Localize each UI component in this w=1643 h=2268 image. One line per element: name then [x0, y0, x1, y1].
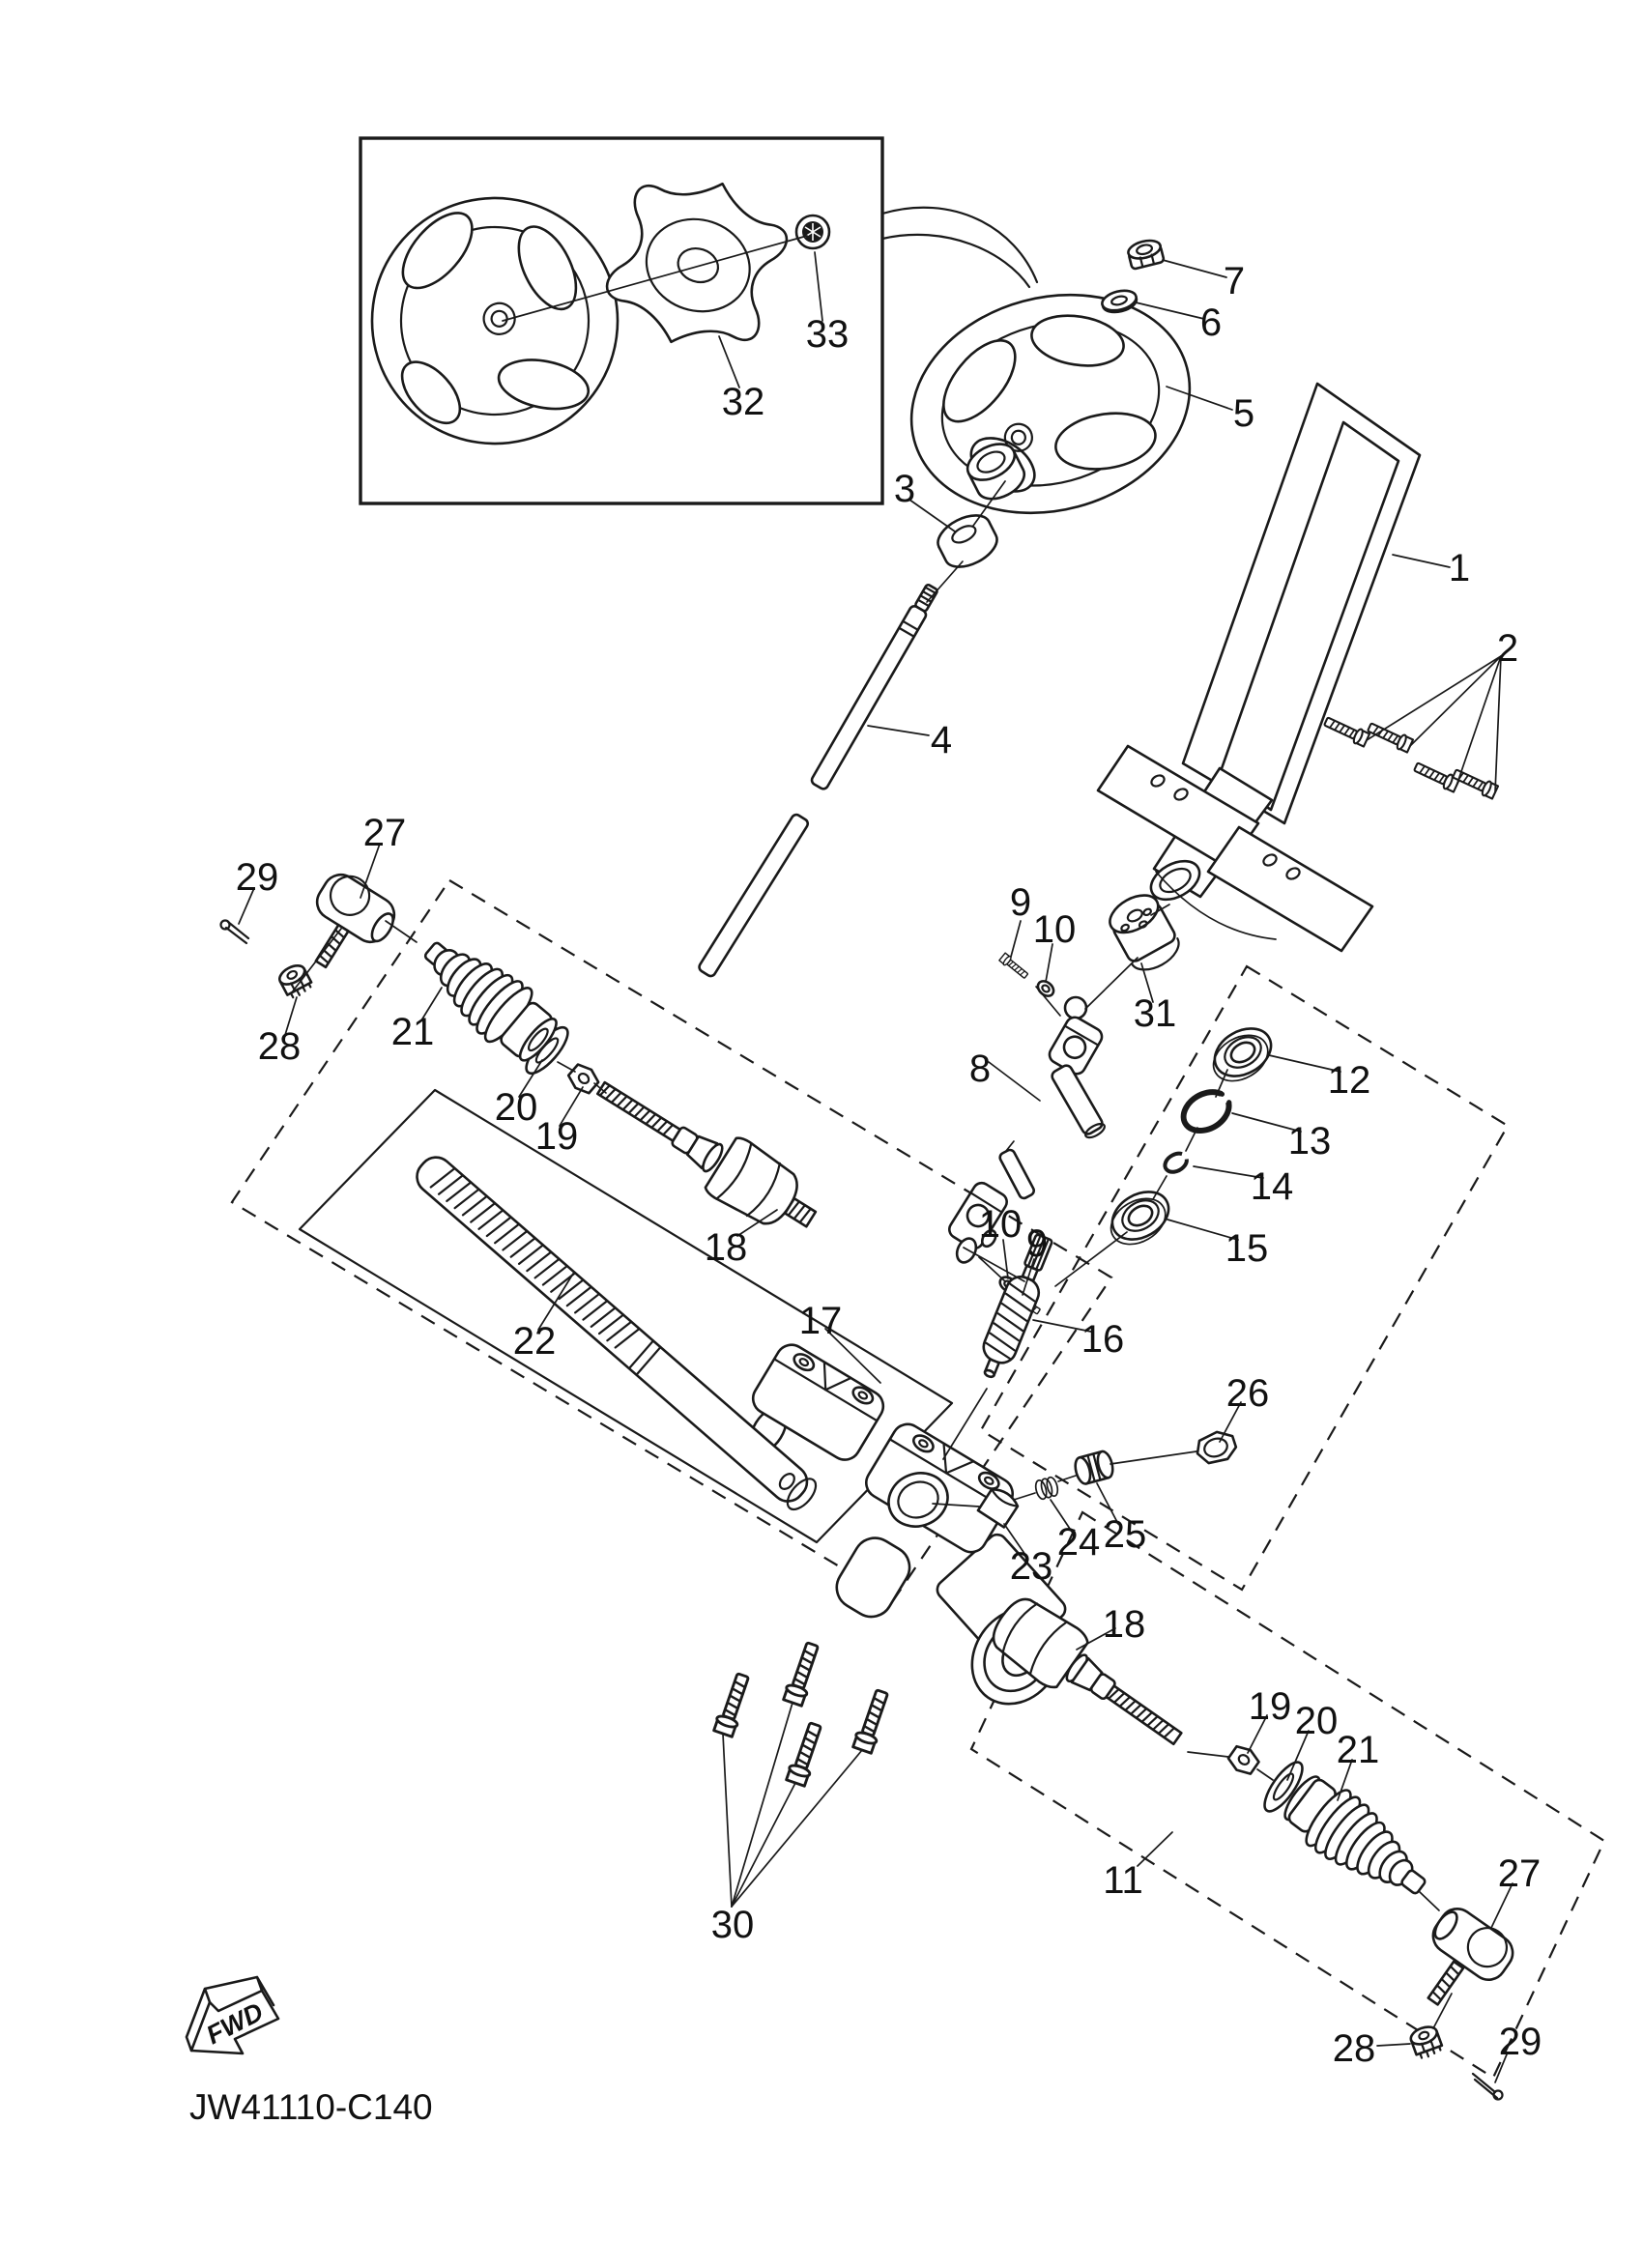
guide-spring: [1034, 1476, 1059, 1500]
callout-10-upper: 10: [1033, 908, 1077, 951]
boot-right: [1275, 1766, 1441, 1914]
callout-9-upper: 9: [1010, 881, 1031, 924]
callout-16: 16: [1081, 1318, 1125, 1361]
callout-9-lower: 9: [1026, 1222, 1048, 1265]
cotter-pin-left: [221, 921, 249, 944]
callout-24: 24: [1057, 1521, 1101, 1564]
callout-31: 31: [1134, 992, 1177, 1035]
callout-21-left: 21: [391, 1011, 435, 1053]
bracket-bolts: [1323, 714, 1499, 799]
castle-nut-right: [1408, 2024, 1444, 2060]
callout-10-lower: 10: [979, 1203, 1023, 1246]
callout-17: 17: [799, 1300, 843, 1342]
callout-28-right: 28: [1333, 2027, 1376, 2070]
drawing-code: JW41110-C140: [189, 2087, 433, 2127]
wheel-nut: [1127, 238, 1165, 270]
callout-1: 1: [1449, 547, 1470, 589]
callout-23: 23: [1010, 1545, 1053, 1588]
steering-wheel-main: [887, 265, 1215, 543]
tie-rod-end-left: [288, 865, 404, 986]
callout-18-right: 18: [1103, 1603, 1146, 1646]
callout-22: 22: [513, 1320, 557, 1363]
inset-leader-curve: [882, 208, 1037, 287]
guide-plug: [1073, 1450, 1115, 1485]
housing-bolts: [713, 1641, 893, 1786]
snap-ring: [1176, 1083, 1238, 1139]
callout-28-left: 28: [258, 1025, 302, 1068]
callout-13: 13: [1288, 1120, 1332, 1163]
inner-tie-rod-left: [584, 1060, 828, 1247]
parts-diagram-page: 1 2 3 4 5 6 7 8 9 10 9 10 11 12 13 14 15…: [0, 0, 1643, 2268]
callout-7: 7: [1224, 260, 1245, 302]
callout-30: 30: [711, 1904, 755, 1946]
exploded-view-drawing: 1 2 3 4 5 6 7 8 9 10 9 10 11 12 13 14 15…: [0, 0, 1643, 2268]
callout-27-left: 27: [363, 812, 407, 854]
castle-nut-left: [276, 962, 314, 1000]
callout-19-right: 19: [1249, 1685, 1292, 1728]
callout-27-right: 27: [1498, 1852, 1542, 1895]
callout-14: 14: [1251, 1165, 1294, 1208]
callout-26: 26: [1226, 1372, 1270, 1415]
callout-29-right: 29: [1499, 2021, 1542, 2063]
callout-5: 5: [1233, 392, 1254, 435]
fwd-arrow: FWD: [187, 1977, 278, 2053]
guide-lock-nut: [1193, 1428, 1238, 1468]
column-bushing: [932, 507, 1002, 574]
callout-20-right: 20: [1295, 1700, 1339, 1742]
callout-21-right: 21: [1337, 1729, 1380, 1771]
joint-bolt-upper: [999, 953, 1030, 981]
circlip: [1162, 1150, 1190, 1175]
main-shaft: [698, 583, 940, 978]
rack-nut-right: [1225, 1742, 1261, 1778]
callout-19-left: 19: [535, 1115, 579, 1158]
horn-pad: [596, 159, 797, 366]
callout-33: 33: [806, 313, 850, 356]
callout-8: 8: [969, 1048, 991, 1090]
callout-20-left: 20: [495, 1086, 538, 1129]
callout-4: 4: [931, 719, 952, 761]
coupling: [1104, 888, 1185, 978]
callout-18-left: 18: [705, 1226, 748, 1269]
rack-nut-left: [565, 1061, 602, 1097]
steering-wheel-inset: [345, 168, 644, 470]
callout-29-left: 29: [236, 856, 279, 899]
callout-15: 15: [1225, 1227, 1269, 1270]
emblem: [796, 215, 829, 248]
callout-12: 12: [1328, 1059, 1371, 1102]
u-joint-upper: [1047, 997, 1107, 1140]
callout-2: 2: [1497, 627, 1518, 670]
callout-32: 32: [722, 381, 765, 423]
callout-6: 6: [1200, 301, 1222, 344]
tie-rod-end-right: [1399, 1901, 1520, 2024]
callout-25: 25: [1104, 1513, 1147, 1556]
callout-11: 11: [1103, 1859, 1143, 1902]
callout-3: 3: [894, 468, 915, 510]
